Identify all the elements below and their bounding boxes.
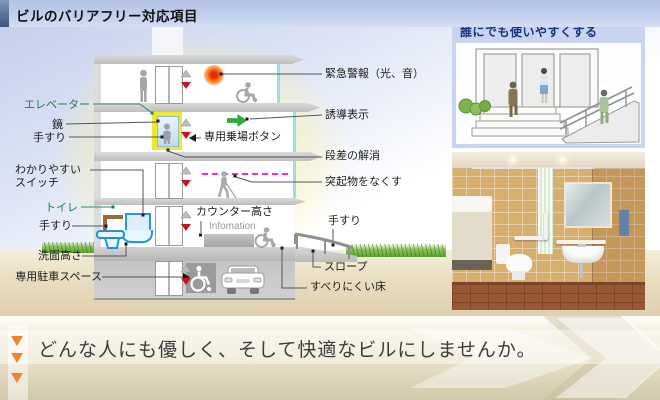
label-emergency-alarm: 緊急警報（光、音） (325, 68, 424, 81)
elevator-person-icon (160, 123, 174, 144)
floor-1 (101, 161, 293, 198)
label-handrail-elevator: 手すり (33, 132, 66, 145)
faucet (578, 244, 586, 247)
label-switch-line1: わかりやすい (15, 164, 81, 177)
grass-right (346, 244, 446, 257)
wheelchair-icon (186, 263, 216, 293)
entrance-illustration-panel: 誰にでも使いやすくする (452, 18, 645, 148)
cane-person-icon (216, 171, 239, 199)
privacy-curtain (538, 168, 553, 254)
label-guidance-sign: 誘導表示 (325, 109, 369, 122)
wall-edge-1 (293, 161, 296, 198)
elevator-door-3f (155, 66, 183, 104)
label-handrail-toilet: 手すり (39, 220, 72, 233)
page: エレベーター 鏡 手すり わかりやすい スイッチ トイレ 手すり 洗面高さ 専用… (0, 0, 660, 400)
label-switch-line2: スイッチ (15, 177, 81, 190)
label-elevator: エレベーター (24, 99, 90, 112)
label-switch: わかりやすい スイッチ (15, 164, 81, 190)
wall-sign (619, 210, 629, 236)
label-washbasin-height: 洗面高さ (38, 250, 82, 263)
triangle-icon (11, 353, 23, 363)
wall-edge-3 (277, 63, 280, 103)
label-handrail-ramp: 手すり (328, 215, 361, 228)
bathroom-mirror (564, 182, 612, 228)
accessible-parking-sign (186, 263, 216, 293)
slab-1 (94, 103, 320, 112)
curtain-rail (472, 167, 594, 169)
protrusion-guide-line (202, 173, 288, 175)
label-parking-space: 専用駐車スペース (15, 271, 102, 284)
elevator-door-1f (155, 163, 183, 199)
bottom-banner: どんな人にも優しく、そして快適なビルにしませんか。 (0, 316, 660, 400)
entrance-illustration (456, 43, 641, 144)
car-icon (220, 264, 266, 295)
triangle-icon (11, 336, 23, 346)
label-mirror: 鏡 (52, 119, 63, 132)
banner-text: どんな人にも優しく、そして快適なビルにしませんか。 (38, 335, 536, 362)
wall-edge-2 (293, 112, 296, 152)
elevator-penthouse (152, 25, 183, 56)
entrance-drawing (456, 43, 641, 144)
changing-table-base (452, 260, 492, 270)
changing-table-top (452, 196, 492, 212)
label-step-elimination: 段差の解消 (325, 150, 380, 163)
label-toilet: トイレ (45, 202, 78, 215)
emergency-alarm-light (204, 65, 224, 85)
triangle-icon (11, 373, 23, 383)
toilet-base (512, 271, 525, 280)
grab-bar (544, 212, 548, 240)
slab-2 (94, 152, 322, 161)
ceiling-light (510, 157, 515, 162)
accessible-bathroom-photo (452, 152, 645, 310)
elevator-door-gf (155, 206, 183, 246)
sink-pipe (580, 263, 583, 278)
toilet-handrail-icon (105, 215, 123, 219)
toilet-icon (96, 228, 130, 253)
bathroom-floor (452, 282, 645, 310)
grab-bar (514, 236, 548, 240)
ceiling-light (560, 157, 565, 162)
elevator-door-b1 (155, 261, 183, 296)
person-standing-icon (136, 69, 151, 103)
information-counter (204, 234, 254, 247)
label-information: Infomation (209, 220, 256, 233)
label-platform-button: 専用乗場ボタン (204, 131, 281, 144)
label-no-protrusions: 突起物をなくす (325, 176, 402, 189)
page-title: ビルのバリアフリー対応項目 (16, 5, 198, 25)
label-nonslip-floor: すべりにくい床 (310, 281, 386, 294)
label-counter-height: カウンター高さ (196, 206, 273, 219)
label-slope: スロープ (324, 261, 367, 274)
sink (562, 246, 604, 263)
slab-3 (94, 198, 306, 205)
title-accent-bar (0, 0, 9, 27)
roof-slab (94, 55, 304, 64)
wheelchair-person-icon (233, 82, 259, 103)
